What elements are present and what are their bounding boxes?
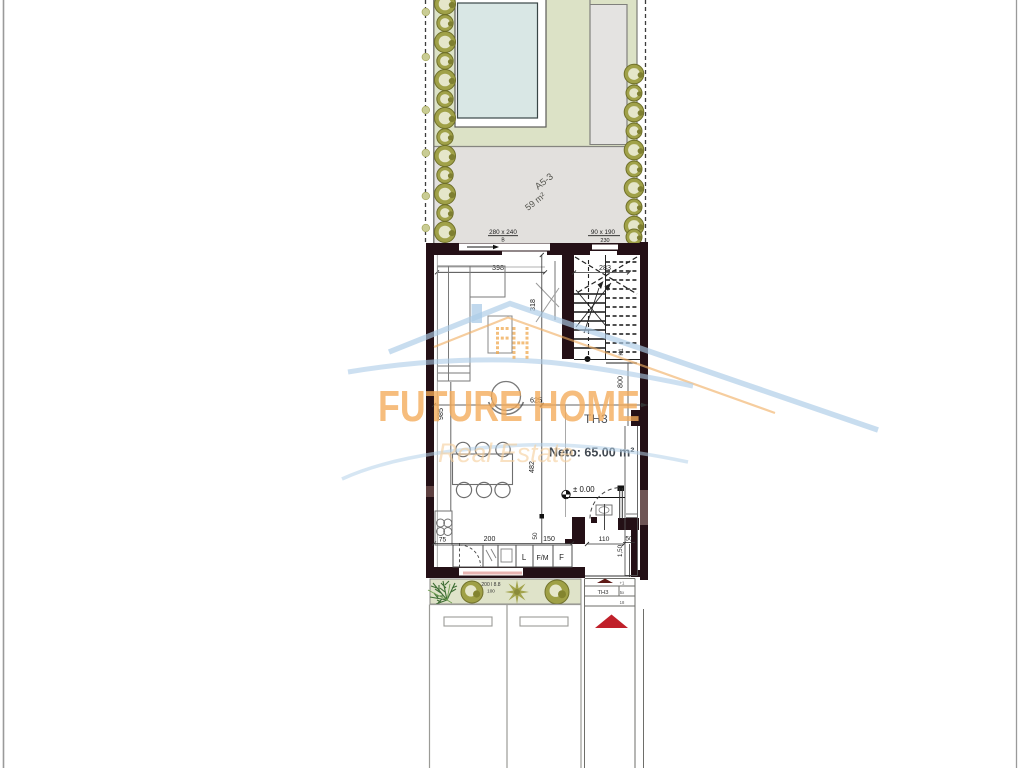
svg-text:110: 110 [599,536,610,543]
svg-text:L: L [522,553,527,562]
svg-text:1,50: 1,50 [617,544,624,557]
svg-text:TH3: TH3 [598,590,609,596]
svg-text:283: 283 [599,263,611,272]
svg-text:398: 398 [492,263,504,272]
svg-text:+1: +1 [620,581,625,586]
svg-text:18: 18 [620,600,625,605]
svg-text:100: 100 [487,589,495,594]
svg-text:F/M: F/M [536,555,548,562]
svg-text:75: 75 [439,537,447,544]
svg-text:280 x 240: 280 x 240 [489,229,517,236]
svg-text:FUTURE HOME: FUTURE HOME [378,382,640,431]
svg-text:90 x 190: 90 x 190 [591,229,616,236]
svg-text:F: F [559,553,564,562]
svg-text:200 l 8.8: 200 l 8.8 [481,582,500,588]
svg-text:50: 50 [625,536,633,543]
svg-text:± 0.00: ± 0.00 [573,485,595,494]
svg-text:200: 200 [484,536,496,543]
svg-text:150: 150 [543,536,555,543]
svg-text:50: 50 [532,532,539,540]
svg-text:Real Estate: Real Estate [438,438,574,468]
svg-text:K1: K1 [619,348,625,356]
